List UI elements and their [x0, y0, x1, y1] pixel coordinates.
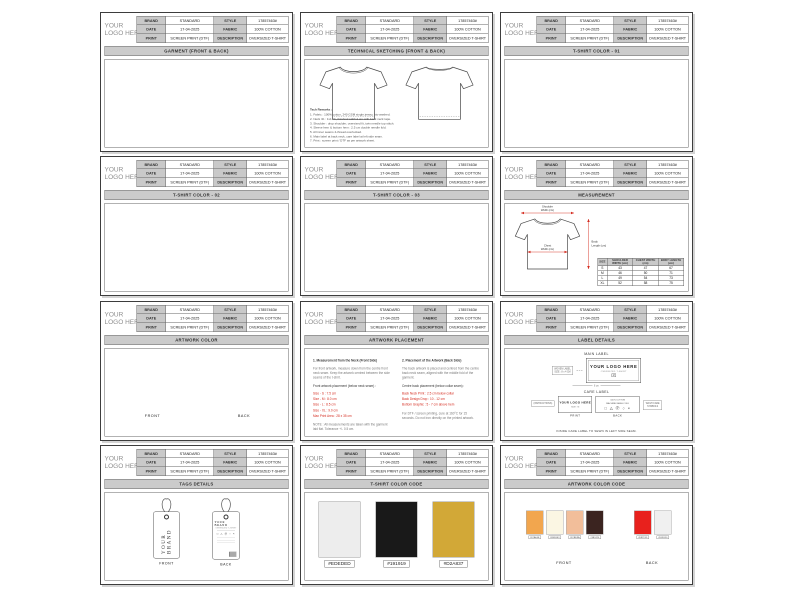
back-caption: BACK — [220, 563, 232, 567]
date-label: DATE — [537, 25, 566, 34]
page-header: YOUR LOGO HERE BRAND STANDARD STYLE 1785… — [305, 449, 489, 476]
color-swatch — [546, 511, 564, 535]
main-label-size: M — [611, 374, 616, 378]
annotation-connector — [577, 370, 583, 371]
description-value: OVERSIZED T-SHIRT — [647, 467, 688, 476]
placement-measure: Bottom Graphic : 5 - 7 cm above hem — [402, 402, 480, 408]
style-value: 17857463# — [647, 17, 688, 26]
style-label: STYLE — [214, 17, 247, 26]
logo-line2: LOGO HERE — [105, 463, 134, 470]
divider — [217, 531, 235, 532]
style-value: 17857463# — [447, 306, 488, 315]
color-hex-label: #E8211D — [637, 536, 649, 540]
color-hex-label: #F0F0F0 — [657, 536, 669, 540]
page-header: YOUR LOGO HERE BRAND STANDARD STYLE 1785… — [305, 160, 489, 187]
logo-line2: LOGO HERE — [105, 319, 134, 326]
description-value: OVERSIZED T-SHIRT — [447, 323, 488, 332]
description-label: DESCRIPTION — [214, 34, 247, 43]
fabric-value: 100% COTTON — [247, 458, 288, 467]
page-measurement: YOUR LOGO HERE BRAND STANDARD STYLE 1785… — [500, 156, 693, 296]
print-value: SCREEN PRINT (DTF) — [166, 467, 214, 476]
placement-front-column: 1. Measurement from the Neck (Front Side… — [313, 359, 391, 432]
description-value: OVERSIZED T-SHIRT — [447, 34, 488, 43]
date-label: DATE — [137, 314, 166, 323]
brand-label: BRAND — [537, 161, 566, 170]
style-value: 17857463# — [647, 306, 688, 315]
page-artwork-placement: YOUR LOGO HERE BRAND STANDARD STYLE 1785… — [300, 301, 493, 441]
fabric-label: FABRIC — [214, 458, 247, 467]
color-swatch — [376, 501, 418, 557]
description-value: OVERSIZED T-SHIRT — [247, 323, 288, 332]
svg-text:Length (cm): Length (cm) — [592, 244, 607, 248]
page-header: YOUR LOGO HERE BRAND STANDARD STYLE 1785… — [505, 305, 689, 332]
main-label-heading: MAIN LABEL — [584, 353, 609, 357]
description-value: OVERSIZED T-SHIRT — [447, 178, 488, 187]
style-label: STYLE — [414, 306, 447, 315]
description-label: DESCRIPTION — [614, 467, 647, 476]
header-info-table: BRAND STANDARD STYLE 17857463# DATE 17-0… — [137, 16, 289, 43]
logo-line2: LOGO HERE — [305, 319, 334, 326]
brand-value: STANDARD — [566, 450, 614, 459]
placement-back-heading: 2. Placement of the Artwork (Back Side) — [402, 359, 480, 364]
table-row: XL 52 58 75 — [598, 281, 684, 286]
description-value: OVERSIZED T-SHIRT — [647, 323, 688, 332]
date-label: DATE — [337, 458, 366, 467]
care-annotation-right: WASH CARE SYMBOLS — [643, 401, 662, 410]
fabric-value: 100% COTTON — [247, 25, 288, 34]
description-label: DESCRIPTION — [414, 467, 447, 476]
print-label: PRINT — [137, 467, 166, 476]
color-hex-label: #F2BE9A — [568, 536, 581, 540]
color-hex-label: #191919 — [383, 560, 409, 568]
color-swatch-group: #D2A837 — [433, 501, 475, 567]
tag-text-line — [217, 538, 235, 539]
date-label: DATE — [137, 458, 166, 467]
print-label: PRINT — [537, 34, 566, 43]
page-header: YOUR LOGO HERE BRAND STANDARD STYLE 1785… — [505, 160, 689, 187]
brand-label: BRAND — [137, 161, 166, 170]
page-header: YOUR LOGO HERE BRAND STANDARD STYLE 1785… — [305, 16, 489, 43]
color03-area — [305, 203, 489, 292]
fabric-value: 100% COTTON — [447, 25, 488, 34]
date-label: DATE — [137, 169, 166, 178]
date-value: 17-04-2025 — [166, 314, 214, 323]
print-label: PRINT — [137, 323, 166, 332]
description-value: OVERSIZED T-SHIRT — [647, 178, 688, 187]
print-value: SCREEN PRINT (DTF) — [166, 323, 214, 332]
style-value: 17857463# — [247, 17, 288, 26]
page-tshirt-color-02: YOUR LOGO HERE BRAND STANDARD STYLE 1785… — [100, 156, 293, 296]
fabric-label: FABRIC — [614, 169, 647, 178]
description-label: DESCRIPTION — [414, 178, 447, 187]
fabric-value: 100% COTTON — [447, 169, 488, 178]
logo-placeholder: YOUR LOGO HERE — [105, 16, 134, 43]
page-label-details: YOUR LOGO HERE BRAND STANDARD STYLE 1785… — [500, 301, 693, 441]
color-hex-label: #EDEDED — [324, 560, 354, 568]
print-value: SCREEN PRINT (DTF) — [366, 467, 414, 476]
logo-placeholder: YOUR LOGO HERE — [505, 16, 534, 43]
color-swatch — [526, 511, 544, 535]
page-artwork-color-code: YOUR LOGO HERE BRAND STANDARD STYLE 1785… — [500, 445, 693, 585]
logo-placeholder: YOUR LOGO HERE — [105, 449, 134, 476]
fabric-label: FABRIC — [214, 169, 247, 178]
brand-label: BRAND — [337, 161, 366, 170]
header-info-table: BRAND STANDARD STYLE 17857463# DATE 17-0… — [337, 305, 489, 332]
brand-value: STANDARD — [566, 306, 614, 315]
style-label: STYLE — [614, 161, 647, 170]
color-hex-label: #D2A837 — [440, 560, 468, 568]
print-value: SCREEN PRINT (DTF) — [566, 467, 614, 476]
brand-label: BRAND — [337, 306, 366, 315]
main-label-subtext: OVERSIZED T-SHIRT — [601, 370, 627, 373]
description-label: DESCRIPTION — [214, 467, 247, 476]
logo-line2: LOGO HERE — [305, 30, 334, 37]
back-caption: BACK — [238, 414, 250, 419]
page-header: YOUR LOGO HERE BRAND STANDARD STYLE 1785… — [105, 16, 289, 43]
hang-tag-back: YOUR BRAND OVERSIZED T-SHIRT □ △ Ⓟ ○ × B… — [212, 495, 240, 581]
style-value: 17857463# — [447, 450, 488, 459]
print-label: PRINT — [337, 34, 366, 43]
date-label: DATE — [337, 25, 366, 34]
header-info-table: BRAND STANDARD STYLE 17857463# DATE 17-0… — [337, 160, 489, 187]
print-value: SCREEN PRINT (DTF) — [566, 34, 614, 43]
logo-line2: LOGO HERE — [105, 174, 134, 181]
brand-label: BRAND — [337, 450, 366, 459]
tech-remarks: Tech Remarks : 1. Fabric : 100% cotton, … — [310, 108, 394, 144]
brand-label: BRAND — [137, 306, 166, 315]
page-title: TECHNICAL SKETCHING (FRONT & BACK) — [305, 46, 489, 56]
date-value: 17-04-2025 — [566, 458, 614, 467]
color01-area — [505, 59, 689, 148]
brand-value: STANDARD — [366, 161, 414, 170]
logo-placeholder: YOUR LOGO HERE — [305, 160, 334, 187]
brand-label: BRAND — [537, 17, 566, 26]
header-info-table: BRAND STANDARD STYLE 17857463# DATE 17-0… — [537, 160, 689, 187]
page-header: YOUR LOGO HERE BRAND STANDARD STYLE 1785… — [505, 16, 689, 43]
color-swatch — [586, 511, 604, 535]
logo-placeholder: YOUR LOGO HERE — [505, 305, 534, 332]
page-header: YOUR LOGO HERE BRAND STANDARD STYLE 1785… — [105, 305, 289, 332]
tag-eyelet — [224, 515, 229, 520]
style-value: 17857463# — [647, 161, 688, 170]
back-tag-subtext: OVERSIZED T-SHIRT — [215, 527, 236, 529]
size-chart: SIZE SHOULDER WIDTH (cm) CHEST WIDTH (cm… — [597, 258, 684, 286]
logo-line2: LOGO HERE — [505, 30, 534, 37]
color-swatch — [319, 501, 361, 557]
header-info-table: BRAND STANDARD STYLE 17857463# DATE 17-0… — [137, 305, 289, 332]
color-swatch — [566, 511, 584, 535]
placement-back-column: 2. Placement of the Artwork (Back Side) … — [402, 359, 480, 432]
print-label: PRINT — [137, 34, 166, 43]
fabric-label: FABRIC — [214, 25, 247, 34]
print-value: SCREEN PRINT (DTF) — [566, 178, 614, 187]
style-value: 17857463# — [247, 161, 288, 170]
logo-line2: LOGO HERE — [305, 174, 334, 181]
fabric-value: 100% COTTON — [647, 314, 688, 323]
description-label: DESCRIPTION — [614, 34, 647, 43]
print-label: PRINT — [537, 178, 566, 187]
page-title: ARTWORK COLOR — [105, 335, 289, 345]
size-chart-header: CHEST WIDTH (cm) — [633, 258, 659, 266]
page-tshirt-color-01: YOUR LOGO HERE BRAND STANDARD STYLE 1785… — [500, 12, 693, 152]
wash-care-icons: □ △ Ⓟ ○ × — [217, 532, 235, 536]
description-value: OVERSIZED T-SHIRT — [647, 34, 688, 43]
print-caption: PRINT — [570, 415, 580, 418]
page-header: YOUR LOGO HERE BRAND STANDARD STYLE 1785… — [305, 305, 489, 332]
brand-label: BRAND — [137, 17, 166, 26]
description-value: OVERSIZED T-SHIRT — [247, 467, 288, 476]
tech-remark-line: 7. Print : screen print / DTF as per art… — [310, 139, 394, 143]
main-label-brand: YOUR LOGO HERE — [590, 364, 637, 369]
date-value: 17-04-2025 — [366, 25, 414, 34]
tag-text-line — [217, 543, 235, 544]
page-title: GARMENT (FRONT & BACK) — [105, 46, 289, 56]
page-header: YOUR LOGO HERE BRAND STANDARD STYLE 1785… — [105, 449, 289, 476]
date-label: DATE — [537, 314, 566, 323]
date-value: 17-04-2025 — [366, 314, 414, 323]
color-swatch — [654, 511, 672, 535]
style-value: 17857463# — [247, 450, 288, 459]
front-caption: FRONT — [145, 414, 160, 419]
color-swatch — [433, 501, 475, 557]
date-value: 17-04-2025 — [566, 314, 614, 323]
description-value: OVERSIZED T-SHIRT — [247, 178, 288, 187]
main-label-annotation: WOVEN LABEL SIZE : 8 x 4 CM — [552, 366, 573, 375]
back-caption: BACK — [646, 561, 658, 566]
placement-measure: Max Print Area : 28 x 35 cm — [313, 413, 391, 419]
tag-eyelet — [164, 515, 169, 520]
header-info-table: BRAND STANDARD STYLE 17857463# DATE 17-0… — [537, 449, 689, 476]
style-label: STYLE — [214, 161, 247, 170]
header-info-table: BRAND STANDARD STYLE 17857463# DATE 17-0… — [537, 305, 689, 332]
tech-remarks-title: Tech Remarks : — [310, 108, 394, 112]
front-artwork-swatches: #F2A64E #FBF6E3 #F2BE9A #3B2420 — [526, 511, 604, 540]
color02-area — [105, 203, 289, 292]
page-title: ARTWORK PLACEMENT — [305, 335, 489, 345]
shoulder-width-label: Shoulder — [542, 205, 553, 209]
garment-photo-area — [105, 59, 289, 148]
style-label: STYLE — [414, 450, 447, 459]
barcode — [229, 552, 237, 558]
page-garment: YOUR LOGO HERE BRAND STANDARD STYLE 1785… — [100, 12, 293, 152]
print-value: SCREEN PRINT (DTF) — [566, 323, 614, 332]
print-label: PRINT — [337, 178, 366, 187]
tshirt-back-sketch — [402, 61, 477, 122]
date-value: 17-04-2025 — [366, 169, 414, 178]
brand-label: BRAND — [137, 450, 166, 459]
print-label: PRINT — [137, 178, 166, 187]
logo-placeholder: YOUR LOGO HERE — [305, 305, 334, 332]
date-value: 17-04-2025 — [166, 458, 214, 467]
wash-care-icons: □ △ Ⓟ ○ × — [604, 405, 631, 411]
fabric-value: 100% COTTON — [247, 169, 288, 178]
fabric-label: FABRIC — [614, 314, 647, 323]
brand-label: BRAND — [537, 450, 566, 459]
logo-placeholder: YOUR LOGO HERE — [305, 449, 334, 476]
brand-value: STANDARD — [366, 306, 414, 315]
fabric-label: FABRIC — [214, 314, 247, 323]
header-info-table: BRAND STANDARD STYLE 17857463# DATE 17-0… — [137, 449, 289, 476]
page-title: T-SHIRT COLOR - 02 — [105, 190, 289, 200]
fabric-value: 100% COTTON — [647, 169, 688, 178]
description-label: DESCRIPTION — [614, 323, 647, 332]
fabric-value: 100% COTTON — [647, 25, 688, 34]
brand-value: STANDARD — [166, 17, 214, 26]
fabric-value: 100% COTTON — [647, 458, 688, 467]
fabric-value: 100% COTTON — [247, 314, 288, 323]
logo-placeholder: YOUR LOGO HERE — [105, 160, 134, 187]
description-label: DESCRIPTION — [214, 323, 247, 332]
brand-value: STANDARD — [566, 161, 614, 170]
logo-placeholder: YOUR LOGO HERE — [505, 160, 534, 187]
date-label: DATE — [537, 169, 566, 178]
tag-text-line — [217, 540, 235, 541]
description-value: OVERSIZED T-SHIRT — [247, 34, 288, 43]
brand-value: STANDARD — [166, 450, 214, 459]
color-swatch-group: #EDEDED — [319, 501, 361, 567]
brand-value: STANDARD — [166, 306, 214, 315]
brand-value: STANDARD — [366, 17, 414, 26]
style-label: STYLE — [414, 17, 447, 26]
date-value: 17-04-2025 — [366, 458, 414, 467]
print-label: PRINT — [337, 323, 366, 332]
style-label: STYLE — [614, 450, 647, 459]
page-tags-details: YOUR LOGO HERE BRAND STANDARD STYLE 1785… — [100, 445, 293, 585]
print-value: SCREEN PRINT (DTF) — [366, 323, 414, 332]
page-tshirt-color-code: YOUR LOGO HERE BRAND STANDARD STYLE 1785… — [300, 445, 493, 585]
fabric-label: FABRIC — [614, 25, 647, 34]
logo-line2: LOGO HERE — [505, 463, 534, 470]
date-value: 17-04-2025 — [566, 169, 614, 178]
date-value: 17-04-2025 — [566, 25, 614, 34]
fabric-value: 100% COTTON — [447, 458, 488, 467]
brand-value: STANDARD — [166, 161, 214, 170]
date-label: DATE — [537, 458, 566, 467]
logo-line2: LOGO HERE — [305, 463, 334, 470]
size-chart-header: SIZE — [598, 258, 608, 266]
front-tag-brand: YOUR BRAND — [161, 522, 172, 555]
print-label: PRINT — [537, 323, 566, 332]
page-header: YOUR LOGO HERE BRAND STANDARD STYLE 1785… — [505, 449, 689, 476]
fabric-label: FABRIC — [414, 25, 447, 34]
care-label-footnote: INSIDE CARE LABEL TO SEWN IN LEFT SIDE S… — [505, 430, 688, 433]
page-title: ARTWORK COLOR CODE — [505, 479, 689, 489]
back-caption: BACK — [613, 415, 622, 418]
fabric-label: FABRIC — [414, 169, 447, 178]
logo-line2: LOGO HERE — [505, 319, 534, 326]
description-label: DESCRIPTION — [414, 34, 447, 43]
page-artwork-color: YOUR LOGO HERE BRAND STANDARD STYLE 1785… — [100, 301, 293, 441]
page-technical-sketching: YOUR LOGO HERE BRAND STANDARD STYLE 1785… — [300, 12, 493, 152]
print-value: SCREEN PRINT (DTF) — [366, 34, 414, 43]
page-tshirt-color-03: YOUR LOGO HERE BRAND STANDARD STYLE 1785… — [300, 156, 493, 296]
fabric-label: FABRIC — [614, 458, 647, 467]
header-info-table: BRAND STANDARD STYLE 17857463# DATE 17-0… — [137, 160, 289, 187]
page-title: T-SHIRT COLOR CODE — [305, 479, 489, 489]
print-label: PRINT — [537, 467, 566, 476]
color-hex-label: #F2A64E — [529, 536, 541, 540]
date-value: 17-04-2025 — [166, 169, 214, 178]
page-title: LABEL DETAILS — [505, 335, 689, 345]
page-title: T-SHIRT COLOR - 01 — [505, 46, 689, 56]
fabric-label: FABRIC — [414, 458, 447, 467]
style-value: 17857463# — [447, 161, 488, 170]
svg-text:Width (cm): Width (cm) — [541, 247, 554, 251]
page-header: YOUR LOGO HERE BRAND STANDARD STYLE 1785… — [105, 160, 289, 187]
style-label: STYLE — [614, 17, 647, 26]
style-label: STYLE — [414, 161, 447, 170]
care-annotation-left: (INSTRUCTIONS) — [531, 401, 555, 407]
header-info-table: BRAND STANDARD STYLE 17857463# DATE 17-0… — [337, 449, 489, 476]
date-value: 17-04-2025 — [166, 25, 214, 34]
style-label: STYLE — [214, 306, 247, 315]
description-label: DESCRIPTION — [414, 323, 447, 332]
care-label-heading: CARE LABEL — [584, 391, 610, 395]
page-title: T-SHIRT COLOR - 03 — [305, 190, 489, 200]
color-swatch — [634, 511, 652, 535]
print-value: SCREEN PRINT (DTF) — [166, 178, 214, 187]
description-value: OVERSIZED T-SHIRT — [447, 467, 488, 476]
style-label: STYLE — [614, 306, 647, 315]
logo-line2: LOGO HERE — [505, 174, 534, 181]
print-value: SCREEN PRINT (DTF) — [366, 178, 414, 187]
svg-text:Width (cm): Width (cm) — [541, 208, 554, 212]
logo-line2: LOGO HERE — [105, 30, 134, 37]
style-label: STYLE — [214, 450, 247, 459]
care-label-print-mockup: YOUR LOGO HERE SIZE : M — [558, 396, 592, 413]
hang-tag-front: YOUR BRAND FRONT — [153, 495, 180, 581]
color-hex-label: #3B2420 — [589, 536, 601, 540]
page-title: MEASUREMENT — [505, 190, 689, 200]
logo-placeholder: YOUR LOGO HERE — [305, 16, 334, 43]
placement-front-heading: 1. Measurement from the Neck (Front Side… — [313, 359, 391, 364]
brand-value: STANDARD — [566, 17, 614, 26]
label-width-measure: 8 cm — [573, 385, 621, 388]
header-info-table: BRAND STANDARD STYLE 17857463# DATE 17-0… — [537, 16, 689, 43]
date-label: DATE — [337, 314, 366, 323]
page-title: TAGS DETAILS — [105, 479, 289, 489]
body-length-label: Body — [592, 240, 599, 244]
date-label: DATE — [337, 169, 366, 178]
style-value: 17857463# — [247, 306, 288, 315]
print-value: SCREEN PRINT (DTF) — [166, 34, 214, 43]
header-info-table: BRAND STANDARD STYLE 17857463# DATE 17-0… — [337, 16, 489, 43]
care-label-back-mockup: 100% COTTON MACHINE WASH COLD □ △ Ⓟ ○ × — [596, 396, 640, 413]
date-label: DATE — [137, 25, 166, 34]
brand-value: STANDARD — [366, 450, 414, 459]
print-label: PRINT — [337, 467, 366, 476]
style-value: 17857463# — [647, 450, 688, 459]
style-value: 17857463# — [447, 17, 488, 26]
description-label: DESCRIPTION — [614, 178, 647, 187]
logo-placeholder: YOUR LOGO HERE — [105, 305, 134, 332]
main-label-mockup: YOUR LOGO HERE OVERSIZED T-SHIRT M — [586, 358, 641, 383]
logo-placeholder: YOUR LOGO HERE — [505, 449, 534, 476]
chest-width-label: Chest — [544, 244, 551, 248]
brand-label: BRAND — [537, 306, 566, 315]
color-hex-label: #FBF6E3 — [548, 536, 561, 540]
fabric-value: 100% COTTON — [447, 314, 488, 323]
brand-label: BRAND — [337, 17, 366, 26]
size-chart-header: SHOULDER WIDTH (cm) — [607, 258, 633, 266]
size-chart-header: BODY LENGTH (cm) — [658, 258, 684, 266]
description-label: DESCRIPTION — [214, 178, 247, 187]
fabric-label: FABRIC — [414, 314, 447, 323]
front-caption: FRONT — [556, 561, 571, 566]
back-artwork-swatches: #E8211D #F0F0F0 — [634, 511, 672, 540]
color-swatch-group: #191919 — [376, 501, 418, 567]
front-caption: FRONT — [159, 562, 174, 566]
